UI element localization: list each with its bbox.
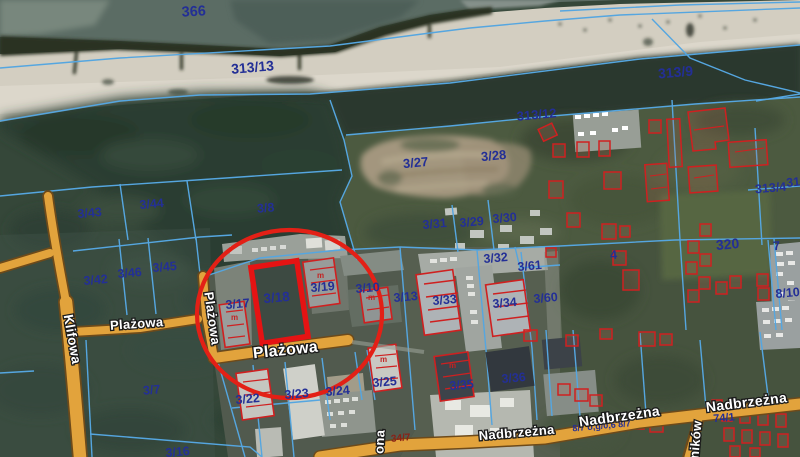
svg-text:3/44: 3/44 — [139, 196, 165, 212]
svg-text:320: 320 — [715, 235, 740, 253]
svg-text:313/4: 313/4 — [754, 180, 786, 197]
svg-text:3/29: 3/29 — [459, 214, 485, 230]
svg-text:366: 366 — [181, 3, 206, 20]
svg-text:3/36: 3/36 — [501, 370, 527, 386]
svg-text:3/42: 3/42 — [83, 272, 109, 288]
svg-text:m: m — [231, 313, 238, 322]
svg-text:3/13: 3/13 — [393, 289, 419, 305]
svg-text:3/43: 3/43 — [77, 205, 103, 221]
svg-text:3/8: 3/8 — [256, 200, 275, 215]
svg-text:3/32: 3/32 — [483, 250, 509, 266]
svg-text:3/60: 3/60 — [533, 290, 559, 306]
svg-text:m: m — [317, 271, 324, 280]
svg-text:3/31: 3/31 — [422, 216, 448, 232]
svg-text:3/10: 3/10 — [355, 280, 381, 296]
svg-text:3/19: 3/19 — [310, 279, 336, 295]
svg-text:3/45: 3/45 — [152, 259, 178, 275]
svg-text:3/35: 3/35 — [449, 377, 475, 393]
svg-text:3/24: 3/24 — [325, 383, 351, 399]
svg-text:8/10: 8/10 — [775, 285, 800, 301]
svg-text:3/16: 3/16 — [165, 444, 191, 457]
svg-text:m: m — [380, 355, 387, 364]
svg-text:3/7: 3/7 — [142, 382, 161, 397]
svg-text:3/25: 3/25 — [372, 374, 398, 390]
svg-text:m: m — [449, 361, 456, 370]
svg-text:3/17: 3/17 — [225, 296, 251, 312]
svg-text:3/30: 3/30 — [492, 210, 518, 226]
svg-text:315: 315 — [786, 174, 800, 190]
svg-text:3/46: 3/46 — [117, 265, 143, 281]
svg-text:ników: ników — [686, 419, 704, 457]
svg-text:3/28: 3/28 — [480, 147, 507, 164]
svg-text:4: 4 — [610, 248, 618, 263]
svg-text:3/33: 3/33 — [432, 292, 458, 308]
svg-text:7: 7 — [773, 239, 781, 254]
svg-text:3/61: 3/61 — [517, 258, 543, 274]
svg-text:ona: ona — [371, 429, 387, 454]
svg-text:3/34: 3/34 — [492, 295, 518, 311]
svg-text:3/22: 3/22 — [235, 391, 261, 407]
svg-text:313/9: 313/9 — [657, 63, 694, 82]
svg-text:3/18: 3/18 — [263, 289, 291, 306]
svg-text:3/23: 3/23 — [284, 386, 310, 402]
svg-text:3/27: 3/27 — [402, 154, 429, 171]
svg-text:34/7: 34/7 — [391, 432, 412, 445]
